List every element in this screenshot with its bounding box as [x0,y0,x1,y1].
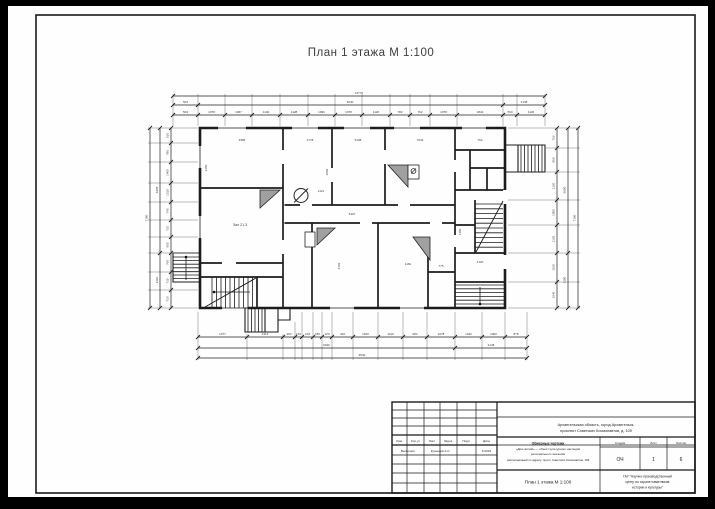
dim-label: 730 [166,278,170,283]
dim-label: 1120 [373,110,380,114]
dim-label: 1313 [262,332,269,336]
room-dim-label: 5108 [355,138,362,142]
stair-arrow-dot-1 [185,256,188,259]
dim-label: 504 [183,110,188,114]
dim-label: 440 [340,332,345,336]
dim-label: 218 [305,332,310,336]
signature-role: Выполнил [401,449,415,453]
dim-label: 1077 [219,332,226,336]
dim-label: 745 [166,208,170,213]
dim-label: 1120 [528,110,535,114]
room-dim-label: 6102 [337,262,341,269]
dim-label: 760 [166,260,170,265]
dim-label: 950 [552,157,556,162]
dim-label: 782 [397,110,402,114]
dim-label: 1078 [208,110,215,114]
dim-label: 720 [166,296,170,301]
room-dim-label: 7642 [417,138,424,142]
room-dim-label: 1121 [318,189,325,193]
doc-description-line4: расположенный по адресу: просп. Советски… [507,458,590,462]
dim-label: 140 [296,332,301,336]
organization-line2: центр по охране памятников [626,480,670,484]
dim-label: 1128 [552,235,556,242]
signature-date: 6.2023 [482,449,492,453]
dim-label: 4965 [155,186,159,193]
doc-description-line1: Обмерные чертежи [532,442,565,446]
dim-label: 1120 [552,182,556,189]
object-address-line2: проспект Советских Космонавтов, д. 109 [560,429,632,433]
dim-label: 2148 [521,100,528,104]
dim-label: 120 [324,332,329,336]
dim-label: 9240 [347,100,354,104]
dim-label: 7180 [573,214,577,221]
room-dim-label: 1181 [405,262,412,266]
room-dim-label: 2778 [307,138,314,142]
dim-label: 1078 [345,110,352,114]
dim-label: 1078 [438,332,445,336]
organization-line3: истории и культуры" [632,486,664,490]
rev-header-data: Дата [483,439,490,443]
dim-label: 250 [286,332,291,336]
organization-line1: ГАУ "Научно-производственный [623,475,672,479]
drawing-sheet-svg: План 1 этажа М 1:100 4985 2778 5108 7642 [0,0,715,509]
rev-header-koluch: Кол.уч [411,439,420,443]
dim-label: 2148 [488,343,495,347]
dim-label: 1000 [552,209,556,216]
dim-label: 610 [166,133,170,138]
dim-label: 762 [552,135,556,140]
screenshot-stage: План 1 этажа М 1:100 4985 2778 5108 7642 [0,0,715,509]
corridor-label: 5407 [349,212,356,216]
stove-box-2 [305,232,315,247]
dim-label: 5000 [563,186,567,193]
dim-label: 9540 [359,353,366,357]
dim-label: 504 [183,100,188,104]
dim-label: 655 [166,242,170,247]
stair-arrow-dot-3 [479,303,482,306]
dim-label: 1342 [465,332,472,336]
room-dim-label: 1450 [458,228,462,235]
room-dim-label: 3560 [325,168,329,175]
rev-header-podp: Подп. [463,439,471,443]
dim-label: 878 [513,332,518,336]
dim-label: 1067 [235,110,242,114]
rev-header-dok: №док. [444,439,453,443]
doc-description-line2: «Дом жилой» — объект культурного наследи… [516,447,581,451]
stage-value: ОЧ [616,457,623,463]
dim-label: 1128 [291,110,298,114]
signature-name: Кузнецов А.С. [431,449,451,453]
dim-label: 180 [315,332,320,336]
dim-label: 2110 [155,276,159,283]
doc-description-line3: регионального значения [531,452,565,456]
dim-label: 780 [166,150,170,155]
room-dim-label: 762 [477,138,482,142]
dim-label: 560 [507,110,512,114]
stair-arrow-dot-2 [213,291,216,294]
dim-label: 2180 [563,276,567,283]
dim-label: 9040 [323,343,330,347]
room-dim-label: 2150 [204,164,208,171]
sheets-value: 6 [680,457,683,463]
dim-label: 1140 [263,110,270,114]
dim-label: 1078 [440,110,447,114]
dim-label: 1160 [552,264,556,271]
dim-label: 1040 [552,291,556,298]
dim-label: 7180 [145,214,149,221]
sheet-header: Лист [650,441,657,445]
dim-label: 1842 [477,110,484,114]
dim-label: 1000 [490,332,497,336]
room-name-label: Зал 21.3 [233,223,247,227]
dim-label: 715 [166,226,170,231]
room-dim-label: 775 [438,264,443,268]
object-address-line1: Архангельская область, город Архангельск… [558,423,635,427]
dim-label: 1090 [318,110,325,114]
stage-header: Стадия [615,441,626,445]
sheet-value: 1 [652,457,655,463]
dim-label: 762 [417,110,422,114]
sheet-title: План 1 этажа М 1:100 [525,480,572,485]
rev-header-izm: Изм. [396,439,403,443]
dim-label: 984 [412,332,417,336]
dim-label: 1020 [362,332,369,336]
room-dim-label: 2120 [477,260,484,264]
dim-label: 1140 [387,332,394,336]
room-dim-label: 4985 [239,138,246,142]
dim-label: 1400 [166,169,170,176]
sheets-header: Листов [676,441,686,445]
rev-header-list: Лист [429,439,436,443]
drawing-title: План 1 этажа М 1:100 [308,47,435,59]
dim-label: 1510 [166,189,170,196]
dim-label: 13770 [355,91,364,95]
